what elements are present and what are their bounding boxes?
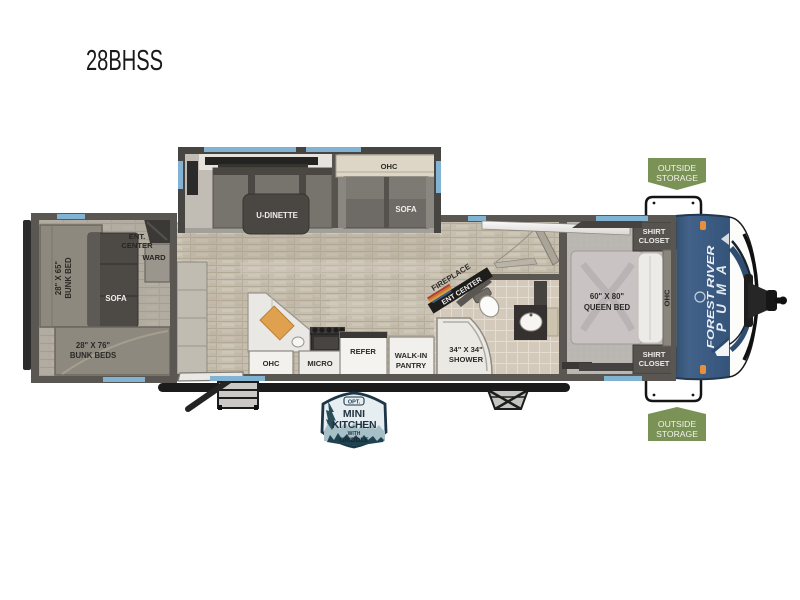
svg-text:REFER: REFER <box>350 347 376 356</box>
svg-text:WARD: WARD <box>142 253 166 262</box>
svg-text:ENT.: ENT. <box>129 232 145 241</box>
svg-text:60" X 80": 60" X 80" <box>590 292 625 301</box>
svg-text:BUNK BEDS: BUNK BEDS <box>70 351 116 360</box>
svg-text:28" X 76": 28" X 76" <box>76 341 111 350</box>
svg-text:OPT.: OPT. <box>348 400 361 406</box>
svg-text:CENTER: CENTER <box>121 241 153 250</box>
svg-text:QUEEN BED: QUEEN BED <box>584 303 631 312</box>
svg-text:OUTSIDE: OUTSIDE <box>658 419 696 429</box>
svg-text:BUNK BED: BUNK BED <box>64 257 73 299</box>
svg-text:MICRO: MICRO <box>307 359 332 368</box>
svg-text:OHC: OHC <box>381 162 398 171</box>
svg-text:STORAGE: STORAGE <box>656 429 698 439</box>
svg-text:PANTRY: PANTRY <box>396 361 426 370</box>
svg-text:28BHSS: 28BHSS <box>86 45 163 77</box>
svg-text:SOFA: SOFA <box>395 205 417 214</box>
svg-text:OHC: OHC <box>263 359 280 368</box>
svg-text:SHIRT: SHIRT <box>643 350 666 359</box>
svg-text:OUTSIDE: OUTSIDE <box>658 163 696 173</box>
svg-text:CLOSET: CLOSET <box>639 236 670 245</box>
svg-text:KITCHEN: KITCHEN <box>332 419 377 431</box>
svg-text:GRIDDLE: GRIDDLE <box>339 437 369 444</box>
svg-text:OHC: OHC <box>663 289 672 306</box>
svg-text:SHOWER: SHOWER <box>449 355 484 364</box>
svg-text:WALK-IN: WALK-IN <box>395 351 427 360</box>
svg-text:28" X 65": 28" X 65" <box>54 261 63 296</box>
svg-text:STORAGE: STORAGE <box>656 173 698 183</box>
svg-text:CLOSET: CLOSET <box>639 359 670 368</box>
svg-text:34" X 34": 34" X 34" <box>449 345 483 354</box>
svg-text:SHIRT: SHIRT <box>643 227 666 236</box>
svg-text:SOFA: SOFA <box>105 294 127 303</box>
svg-text:U-DINETTE: U-DINETTE <box>256 211 298 220</box>
